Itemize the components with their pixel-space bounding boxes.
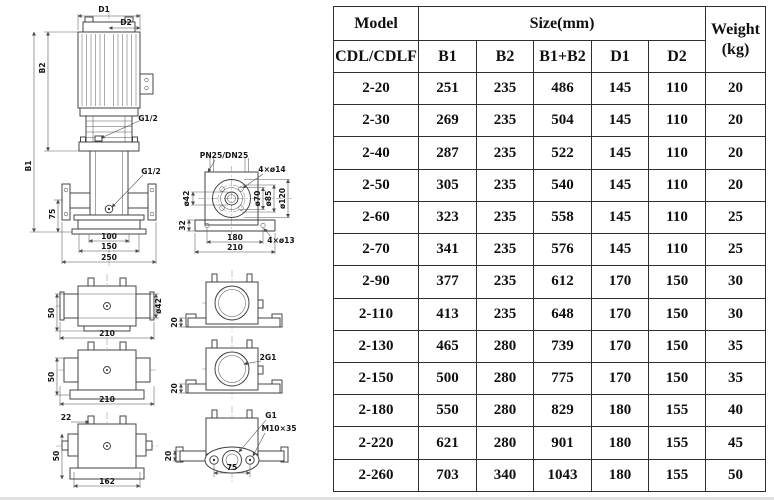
d1-cell: 170 (592, 298, 649, 330)
dim-b1: B1 (24, 160, 33, 171)
table-row: 2-50 305 235 540 145 110 20 (334, 169, 766, 201)
dimension-table: Model Size(mm) Weight (kg) CDL/CDLF B1 B… (333, 6, 766, 492)
header-b1: B1 (419, 41, 477, 73)
bolt-m10x35: M10×35 (261, 424, 296, 433)
b1b2-cell: 775 (534, 362, 592, 394)
flange-rating-label: PN25/DN25 (200, 151, 249, 160)
model-cell: 2-150 (334, 362, 419, 394)
d2-cell: 155 (649, 395, 706, 427)
d2-cell: 150 (649, 362, 706, 394)
right-view-2: 2G1 20 (170, 336, 282, 398)
dim-20-rv1: 20 (170, 317, 179, 328)
d1-cell: 180 (592, 459, 649, 491)
d2-cell: 110 (649, 137, 706, 169)
dim-20-rv3: 20 (164, 451, 173, 462)
b1-cell: 550 (419, 395, 477, 427)
right-view-3: G1 M10×35 75 20 (164, 406, 297, 484)
b1-cell: 341 (419, 234, 477, 266)
d2-cell: 110 (649, 73, 706, 105)
base-top (74, 215, 144, 220)
dim-32: 32 (178, 220, 187, 231)
b1b2-cell: 739 (534, 330, 592, 362)
dim-pipe-sv1: ø42 (154, 298, 163, 314)
bottom-left-view: 22 50 162 (52, 412, 158, 488)
b1b2-cell: 1043 (534, 459, 592, 491)
d2-cell: 150 (649, 298, 706, 330)
b2-cell: 235 (477, 73, 534, 105)
right-view-1: 20 (170, 270, 282, 332)
b2-cell: 280 (477, 395, 534, 427)
weight-cell: 30 (706, 266, 766, 298)
table-row: 2-90 377 235 612 170 150 30 (334, 266, 766, 298)
dim-50-sv2: 50 (47, 372, 56, 383)
dim-250: 250 (101, 253, 117, 262)
b1b2-cell: 504 (534, 105, 592, 137)
b1b2-cell: 540 (534, 169, 592, 201)
b1b2-cell: 612 (534, 266, 592, 298)
b1-cell: 287 (419, 137, 477, 169)
pump-body-rv2 (206, 348, 258, 390)
port-2g1: 2G1 (260, 353, 277, 362)
d1-cell: 170 (592, 266, 649, 298)
d2-cell: 110 (649, 169, 706, 201)
b1-cell: 621 (419, 427, 477, 459)
dim-150: 150 (101, 242, 117, 251)
dim-50-bl: 50 (52, 451, 61, 462)
model-cell: 2-20 (334, 73, 419, 105)
weight-cell: 20 (706, 137, 766, 169)
model-cell: 2-60 (334, 201, 419, 233)
dim-d2: D2 (120, 18, 132, 27)
model-cell: 2-40 (334, 137, 419, 169)
d1-cell: 145 (592, 169, 649, 201)
d2-cell: 150 (649, 330, 706, 362)
table-row: 2-130 465 280 739 170 150 35 (334, 330, 766, 362)
dim-pipe-dia: ø42 (182, 191, 191, 207)
dim-d1: D1 (98, 5, 110, 14)
d1-cell: 145 (592, 73, 649, 105)
port-g1: G1 (265, 411, 277, 420)
model-cell: 2-180 (334, 395, 419, 427)
b2-cell: 280 (477, 427, 534, 459)
dim-50-sv1: 50 (47, 308, 56, 319)
table-row: 2-260 703 340 1043 180 155 50 (334, 459, 766, 491)
model-cell: 2-220 (334, 427, 419, 459)
b1-cell: 251 (419, 73, 477, 105)
table-row: 2-110 413 235 648 170 150 30 (334, 298, 766, 330)
header-b1b2: B1+B2 (534, 41, 592, 73)
d2-cell: 150 (649, 266, 706, 298)
table-row: 2-20 251 235 486 145 110 20 (334, 73, 766, 105)
dim-210-flange: 210 (227, 243, 243, 252)
model-cell: 2-70 (334, 234, 419, 266)
b2-cell: 235 (477, 298, 534, 330)
port-g12-mid: G1/2 (141, 167, 161, 176)
dim-75-rv3: 75 (227, 463, 238, 472)
b1-cell: 500 (419, 362, 477, 394)
dim-b2: B2 (38, 62, 47, 73)
weight-cell: 40 (706, 395, 766, 427)
header-size: Size(mm) (419, 7, 706, 41)
weight-cell: 35 (706, 362, 766, 394)
suction-flange (62, 184, 70, 220)
b1b2-cell: 648 (534, 298, 592, 330)
weight-cell: 25 (706, 201, 766, 233)
dim-162: 162 (99, 477, 115, 486)
model-cell: 2-30 (334, 105, 419, 137)
b1b2-cell: 522 (534, 137, 592, 169)
d1-cell: 180 (592, 395, 649, 427)
header-weight: Weight (kg) (706, 7, 766, 73)
b2-cell: 280 (477, 330, 534, 362)
dim-20-rv2: 20 (170, 383, 179, 394)
header-b2: B2 (477, 41, 534, 73)
b1b2-cell: 829 (534, 395, 592, 427)
table-row: 2-60 323 235 558 145 110 25 (334, 201, 766, 233)
weight-cell: 20 (706, 73, 766, 105)
table-row: 2-180 550 280 829 180 155 40 (334, 395, 766, 427)
header-weight-line2: (kg) (706, 40, 765, 60)
b2-cell: 235 (477, 137, 534, 169)
dim-d70: ø70 (253, 191, 262, 207)
weight-cell: 45 (706, 427, 766, 459)
motor-body (78, 32, 140, 108)
dim-180: 180 (227, 233, 243, 242)
b1b2-cell: 901 (534, 427, 592, 459)
b2-cell: 235 (477, 105, 534, 137)
b2-cell: 235 (477, 169, 534, 201)
dim-d120: ø120 (278, 188, 287, 209)
d1-cell: 145 (592, 201, 649, 233)
model-cell: 2-260 (334, 459, 419, 491)
weight-cell: 20 (706, 105, 766, 137)
motor-flange (80, 108, 138, 116)
header-d1: D1 (592, 41, 649, 73)
model-cell: 2-130 (334, 330, 419, 362)
d2-cell: 110 (649, 105, 706, 137)
dim-210-sv2: 210 (99, 395, 115, 404)
table-row: 2-40 287 235 522 145 110 20 (334, 137, 766, 169)
header-weight-line1: Weight (706, 20, 765, 40)
model-cell: 2-110 (334, 298, 419, 330)
weight-cell: 35 (706, 330, 766, 362)
b1-cell: 465 (419, 330, 477, 362)
b1-cell: 703 (419, 459, 477, 491)
table-row: 2-150 500 280 775 170 150 35 (334, 362, 766, 394)
b1-cell: 377 (419, 266, 477, 298)
b1-cell: 305 (419, 169, 477, 201)
b1b2-cell: 576 (534, 234, 592, 266)
b1b2-cell: 486 (534, 73, 592, 105)
page: D1 D2 B2 B1 75 G1/2 G1/2 100 150 250 (0, 0, 774, 500)
dim-22: 22 (61, 413, 72, 422)
header-model-series: CDL/CDLF (334, 41, 419, 73)
flange-plan-view: PN25/DN25 4×ø14 ø42 ø70 ø85 ø120 32 180 (178, 151, 295, 254)
b1b2-cell: 558 (534, 201, 592, 233)
model-cell: 2-90 (334, 266, 419, 298)
d1-cell: 170 (592, 362, 649, 394)
dim-75: 75 (48, 209, 57, 220)
b1-cell: 413 (419, 298, 477, 330)
vent-plug (95, 136, 102, 141)
port-g12-top: G1/2 (138, 114, 158, 123)
weight-cell: 25 (706, 234, 766, 266)
d1-cell: 180 (592, 427, 649, 459)
terminal-box (140, 74, 153, 94)
base-body (78, 220, 140, 229)
pump-body-rv1 (206, 282, 258, 324)
pump-head-flange (79, 142, 139, 151)
b2-cell: 280 (477, 362, 534, 394)
discharge-flange (148, 184, 156, 220)
d2-cell: 110 (649, 234, 706, 266)
header-model: Model (334, 7, 419, 41)
b2-cell: 235 (477, 201, 534, 233)
d1-cell: 145 (592, 137, 649, 169)
d1-cell: 145 (592, 234, 649, 266)
side-view-2: 50 210 (47, 338, 156, 406)
d1-cell: 145 (592, 105, 649, 137)
model-cell: 2-50 (334, 169, 419, 201)
front-view: D1 D2 B2 B1 75 G1/2 G1/2 100 150 250 (24, 5, 161, 266)
b2-cell: 235 (477, 234, 534, 266)
d1-cell: 170 (592, 330, 649, 362)
side-view-1: 50 210 ø42 (47, 274, 163, 340)
d2-cell: 155 (649, 427, 706, 459)
dim-100: 100 (101, 232, 117, 241)
d2-cell: 155 (649, 459, 706, 491)
flange-bolt-holes-label: 4×ø14 (258, 165, 285, 174)
b2-cell: 340 (477, 459, 534, 491)
weight-cell: 20 (706, 169, 766, 201)
dim-210-sv1: 210 (99, 329, 115, 338)
dim-d85: ø85 (264, 191, 273, 207)
d2-cell: 110 (649, 201, 706, 233)
pump-dimension-drawing: D1 D2 B2 B1 75 G1/2 G1/2 100 150 250 (0, 0, 333, 500)
table-row: 2-70 341 235 576 145 110 25 (334, 234, 766, 266)
table-row: 2-220 621 280 901 180 155 45 (334, 427, 766, 459)
b1-cell: 323 (419, 201, 477, 233)
b1-cell: 269 (419, 105, 477, 137)
weight-cell: 50 (706, 459, 766, 491)
b2-cell: 235 (477, 266, 534, 298)
dimension-table-container: Model Size(mm) Weight (kg) CDL/CDLF B1 B… (333, 6, 765, 492)
header-d2: D2 (649, 41, 706, 73)
weight-cell: 30 (706, 298, 766, 330)
table-row: 2-30 269 235 504 145 110 20 (334, 105, 766, 137)
